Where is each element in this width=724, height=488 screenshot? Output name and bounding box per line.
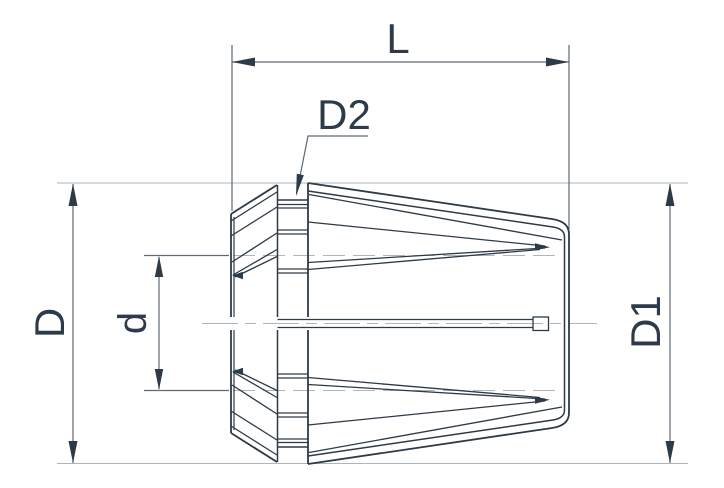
length-arrow-right: [546, 58, 569, 67]
centerline-group: [202, 256, 597, 391]
neck-label: D2: [317, 91, 371, 138]
drawing-canvas: L D d D1 D2: [0, 0, 724, 488]
length-arrow-left: [232, 58, 255, 67]
bore-label: d: [111, 312, 155, 334]
nose-top-edge: [231, 185, 277, 214]
dimension-neck: D2: [296, 91, 371, 196]
dimension-rear-diameter: D1: [622, 184, 675, 464]
body-slot-tip-lower: [535, 397, 550, 404]
body-slot-tip-upper: [535, 243, 550, 250]
outer-diameter-label: D: [26, 308, 73, 338]
rear-diameter-arrow-top: [666, 184, 675, 207]
rear-diameter-arrow-bottom: [666, 441, 675, 463]
rear-diameter-label: D1: [622, 295, 669, 349]
outer-diameter-arrow-bottom: [69, 441, 78, 463]
outer-diameter-arrow-top: [69, 184, 78, 207]
bore-arrow-top: [155, 256, 163, 277]
collet-technical-drawing: L D d D1 D2: [0, 0, 724, 488]
bore-arrow-bottom: [155, 369, 163, 390]
length-label: L: [386, 15, 409, 62]
nose-bottom-edge: [231, 433, 277, 462]
neck-leader-arrow: [296, 174, 304, 196]
dimension-outer-diameter: D: [26, 184, 78, 464]
